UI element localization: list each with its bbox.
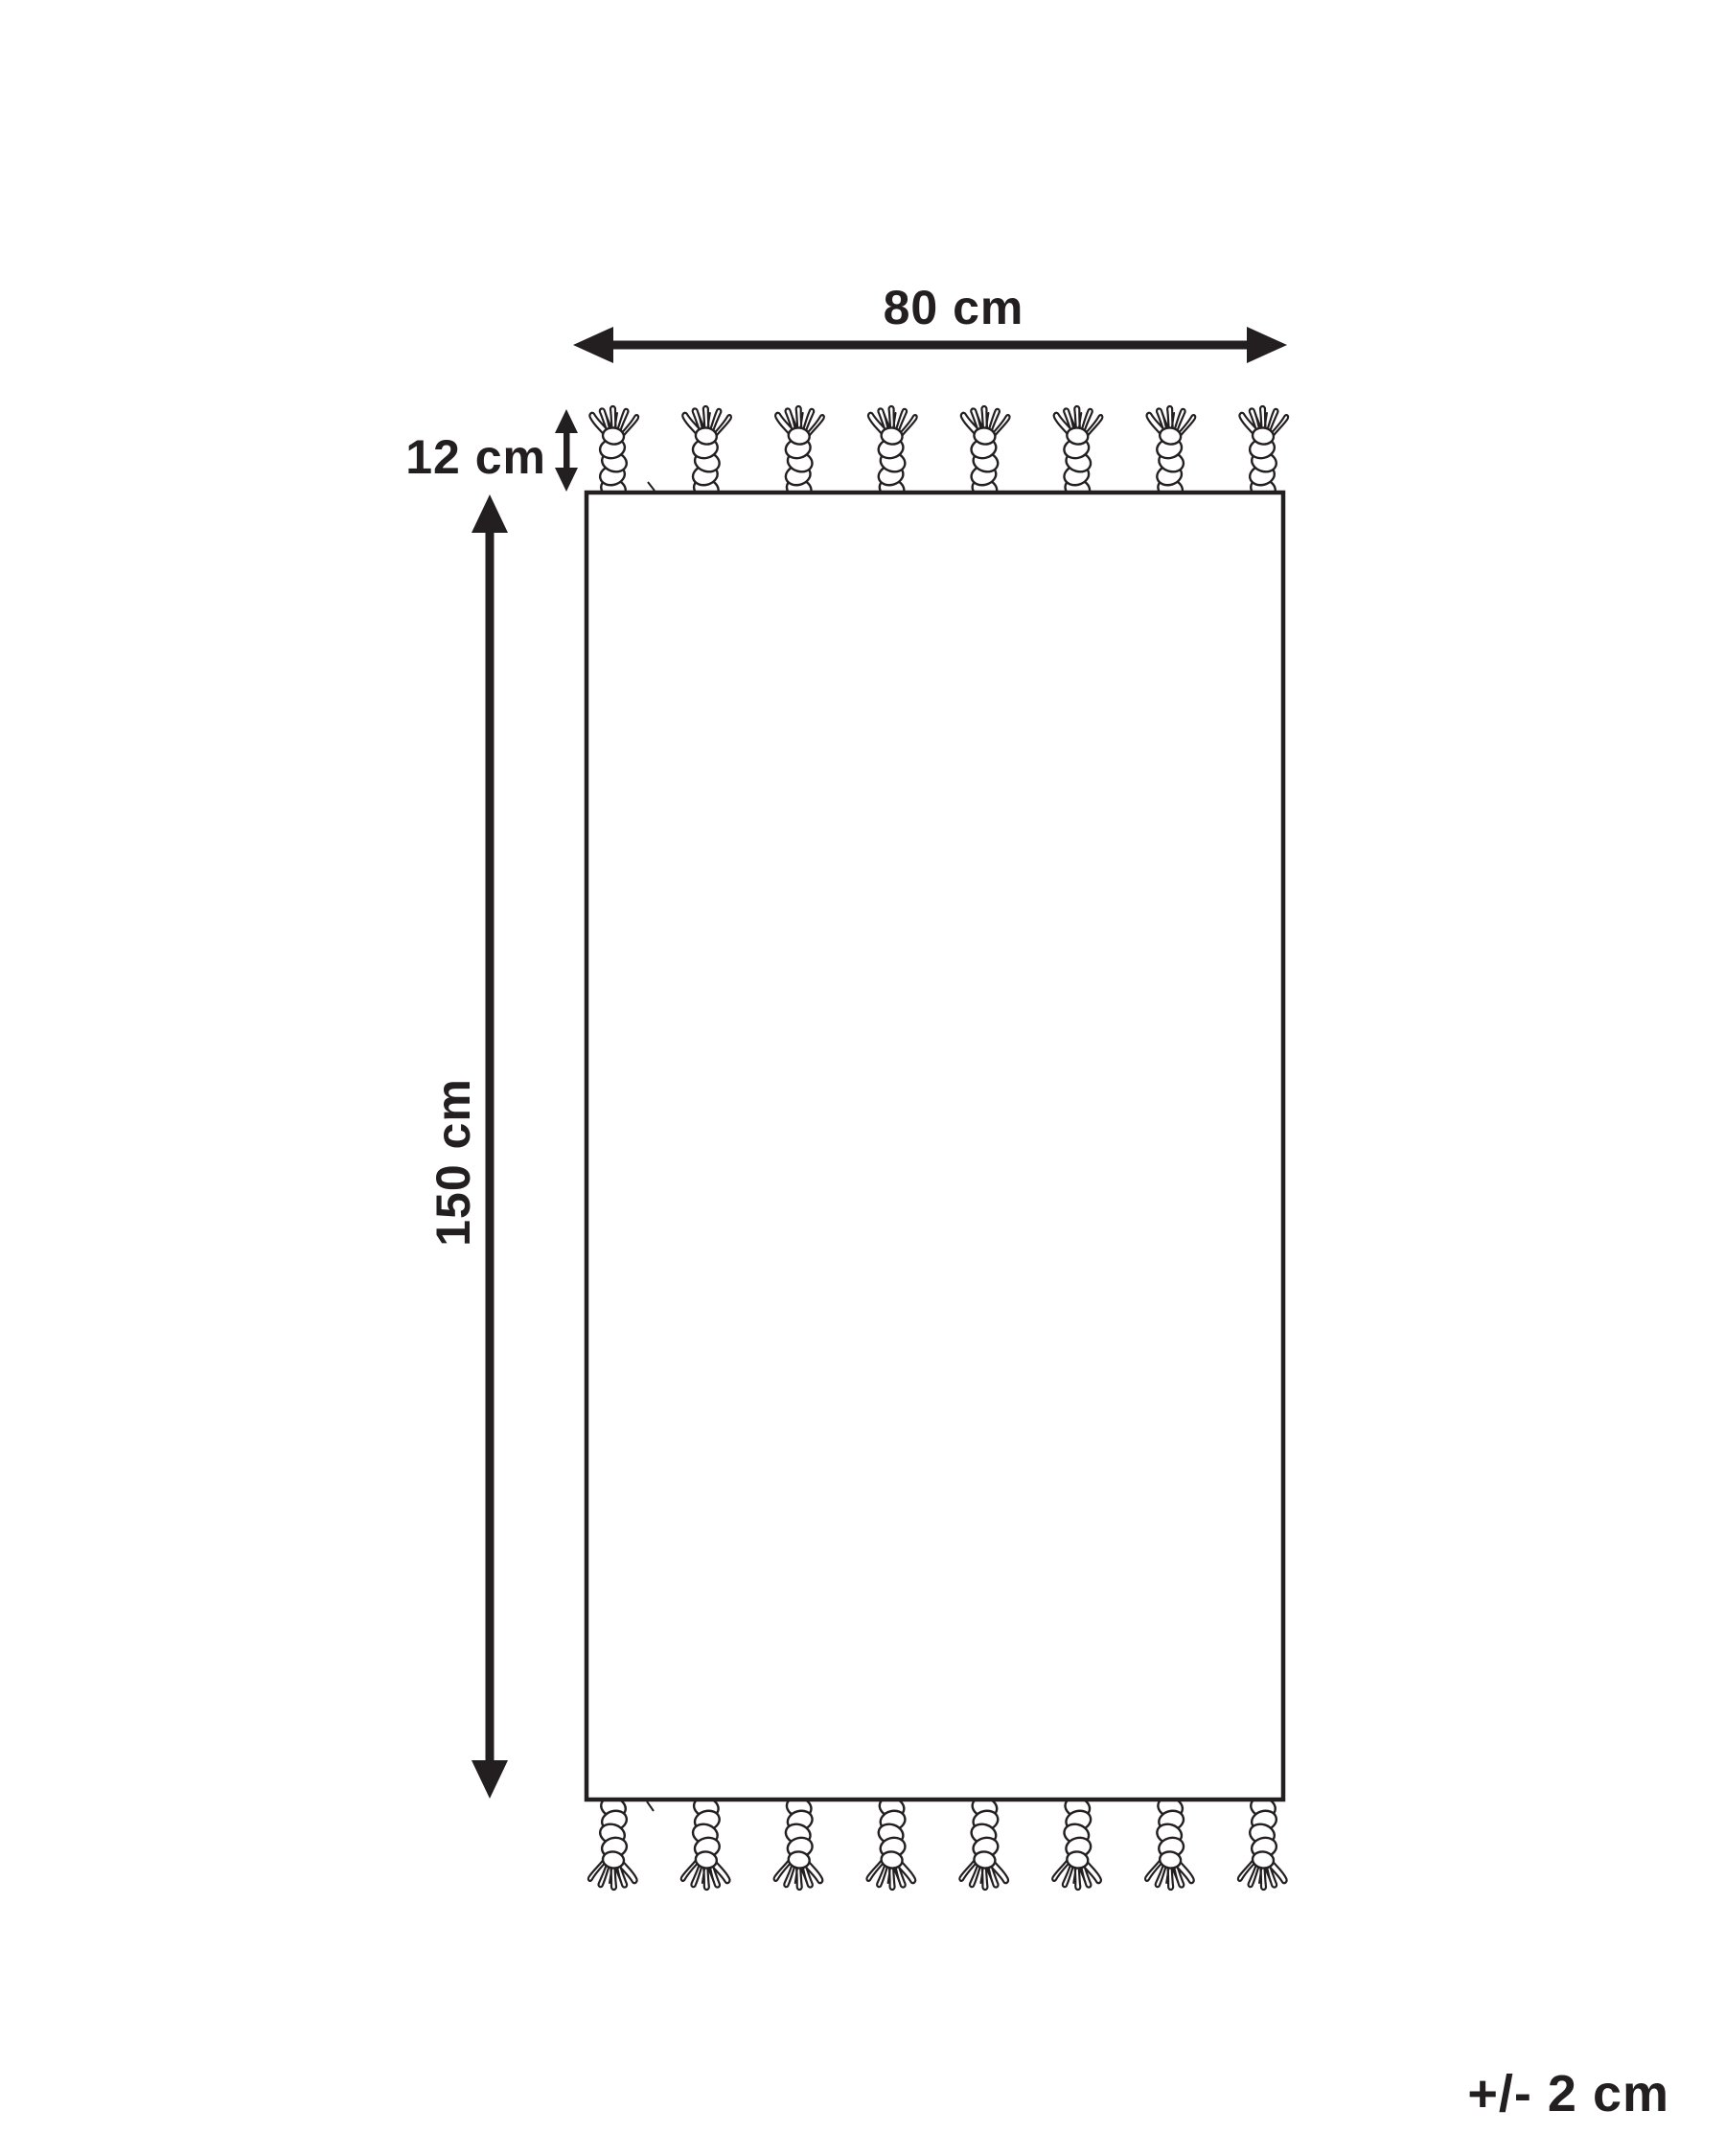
tolerance-label: +/- 2 cm (1467, 2068, 1669, 2120)
fringe-arrow (555, 409, 578, 492)
tassel (1054, 406, 1103, 502)
tassel (589, 406, 638, 502)
rug-outline (586, 493, 1283, 1800)
tassel (774, 1794, 823, 1890)
width-dimension-label: 80 cm (884, 284, 1024, 332)
fringe-dimension-label: 12 cm (405, 433, 546, 481)
tassel (1147, 406, 1196, 502)
tassel (1238, 1794, 1287, 1890)
tassel-row-top (589, 406, 1288, 502)
tassel (588, 1794, 637, 1890)
tassel (868, 406, 917, 502)
thread-mark-top (648, 482, 655, 491)
tassel (1239, 406, 1288, 502)
tassel (682, 406, 731, 502)
dimension-diagram: 80 cm 12 cm 150 cm +/- 2 cm (0, 0, 1725, 2156)
tassel (681, 1794, 730, 1890)
tassel (961, 406, 1010, 502)
tassel (775, 406, 824, 502)
height-dimension-label: 150 cm (429, 1078, 477, 1247)
tassel (1052, 1794, 1101, 1890)
tassel (1145, 1794, 1194, 1890)
thread-mark-bottom (647, 1801, 654, 1811)
diagram-canvas (0, 0, 1725, 2156)
tassel-row-bottom (588, 1794, 1287, 1890)
tassel (959, 1794, 1008, 1890)
tassel (866, 1794, 915, 1890)
